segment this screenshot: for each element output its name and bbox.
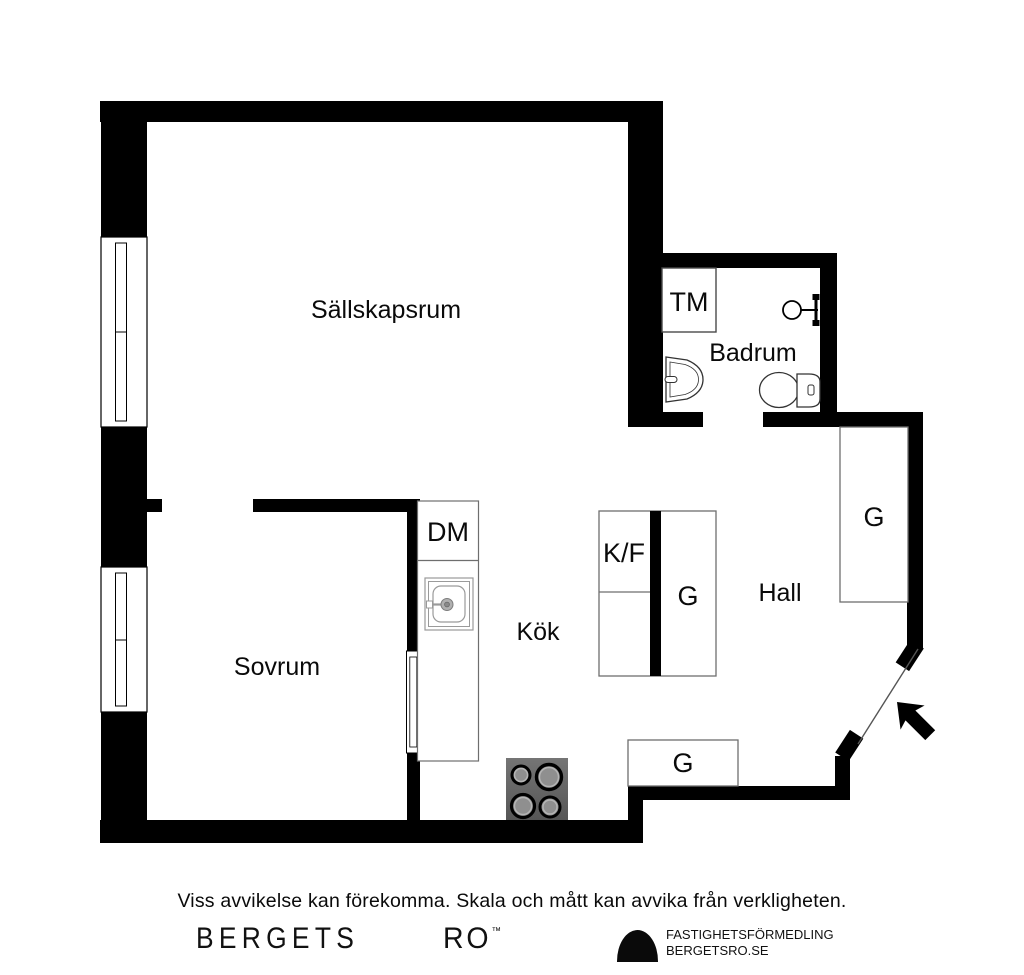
fixture-label-closet-unit: G — [677, 581, 698, 611]
wall-right-exterior — [907, 412, 923, 648]
wall-bedroom-top — [253, 499, 420, 512]
stove-icon — [506, 758, 568, 820]
brand-tagline-line1: FASTIGHETSFÖRMEDLING — [666, 927, 834, 943]
shower-mixer-icon — [783, 294, 820, 326]
brand-bar: BERGETS RO™ FASTIGHETSFÖRMEDLING BERGETS… — [0, 918, 1024, 968]
wall-top — [100, 101, 663, 122]
wall-bedroom-right-lower — [407, 753, 420, 822]
fixture-label-fridge-freezer: K/F — [603, 538, 645, 568]
fixture-label-closet-hall: G — [863, 502, 884, 532]
brand-tagline-line2: BERGETSRO.SE — [666, 943, 834, 959]
floor-plan: Sällskapsrum Badrum Sovrum Kök Hall TM D… — [0, 0, 1024, 975]
wall-left-middle — [101, 427, 147, 567]
wall-bedroom-door-stub — [146, 499, 162, 512]
room-label-bedroom: Sovrum — [234, 653, 320, 681]
wall-bottom-step — [628, 786, 643, 843]
brand-dome-icon — [617, 930, 658, 962]
room-label-bathroom: Badrum — [709, 339, 797, 367]
toilet-icon — [760, 373, 821, 408]
wall-left-upper — [101, 101, 147, 237]
brand-wordmark-ro: RO™ — [443, 922, 501, 956]
fixture-label-dishwasher: DM — [427, 517, 469, 547]
wall-bathroom-bottom-left — [628, 412, 703, 427]
brand-tagline: FASTIGHETSFÖRMEDLING BERGETSRO.SE — [666, 927, 834, 958]
fixture-label-washing-machine: TM — [670, 287, 709, 317]
wall-bottom-right — [628, 786, 850, 800]
wall-livingroom-right-column — [628, 122, 663, 427]
room-label-livingroom: Sällskapsrum — [311, 296, 461, 324]
room-label-kitchen: Kök — [516, 618, 560, 646]
disclaimer-text: Viss avvikelse kan förekomma. Skala och … — [0, 890, 1024, 913]
entry-door-leaf — [858, 649, 918, 744]
wall-bottom-left — [100, 820, 643, 843]
wall-bathroom-right — [820, 253, 837, 427]
floor-plan-page: Sällskapsrum Badrum Sovrum Kök Hall TM D… — [0, 0, 1024, 975]
washbasin-icon — [665, 357, 703, 402]
window-bedroom — [101, 567, 147, 712]
room-label-hall: Hall — [758, 579, 801, 607]
window-livingroom — [101, 237, 147, 427]
wall-bathroom-top — [655, 253, 837, 268]
kitchen-sink-icon — [425, 578, 473, 630]
wall-entry-vertical — [835, 756, 850, 800]
brand-wordmark-bergets: BERGETS — [196, 922, 359, 956]
trademark-symbol: ™ — [491, 926, 501, 937]
fixture-label-closet-kitchen: G — [672, 748, 693, 778]
entrance-arrow-icon — [885, 690, 942, 747]
wall-hall-top — [763, 412, 923, 427]
walls — [100, 101, 924, 843]
